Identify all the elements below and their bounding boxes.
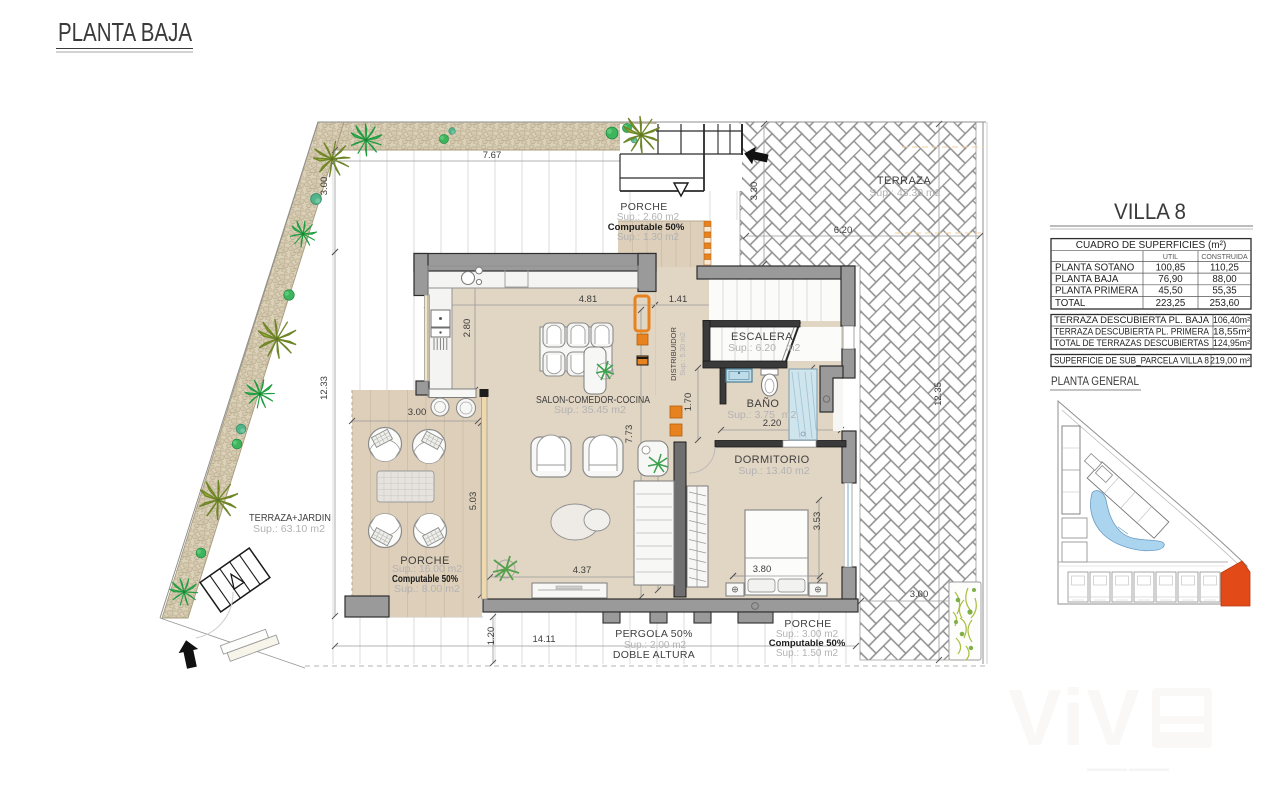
svg-text:1.70: 1.70 xyxy=(683,393,694,412)
svg-text:55,35: 55,35 xyxy=(1212,286,1236,297)
svg-text:12.35: 12.35 xyxy=(933,382,944,406)
svg-text:TERRAZA: TERRAZA xyxy=(877,175,931,187)
svg-text:5.03: 5.03 xyxy=(468,492,479,511)
svg-text:7.73: 7.73 xyxy=(624,425,635,444)
svg-text:▬▬▬▬▬ ▬▬▬▬▬: ▬▬▬▬▬ ▬▬▬▬▬ xyxy=(1087,764,1169,773)
svg-text:UTIL: UTIL xyxy=(1163,254,1178,261)
svg-text:2.80: 2.80 xyxy=(462,319,473,338)
svg-text:SUPERFICIE DE SUB_PARCELA VILL: SUPERFICIE DE SUB_PARCELA VILLA 8 xyxy=(1054,356,1209,366)
svg-text:4.37: 4.37 xyxy=(573,565,592,576)
svg-text:3.30: 3.30 xyxy=(749,182,760,201)
svg-text:Sup.: 3.75: Sup.: 3.75 xyxy=(727,409,775,421)
svg-text:18,55m²: 18,55m² xyxy=(1213,327,1250,337)
svg-text:TERRAZA DESCUBIERTA PL. PRIMER: TERRAZA DESCUBIERTA PL. PRIMERA xyxy=(1054,327,1210,337)
svg-text:1.41: 1.41 xyxy=(669,294,688,305)
svg-text:76,90: 76,90 xyxy=(1158,274,1183,285)
svg-text:TERRAZA+JARDIN: TERRAZA+JARDIN xyxy=(249,512,331,524)
svg-text:CONSTRUIDA: CONSTRUIDA xyxy=(1201,254,1248,261)
svg-text:223,25: 223,25 xyxy=(1156,298,1186,309)
svg-text:3.53: 3.53 xyxy=(812,512,823,531)
svg-text:106,40m²: 106,40m² xyxy=(1213,315,1250,325)
svg-text:Sup.: 1.50 m2: Sup.: 1.50 m2 xyxy=(776,648,839,659)
svg-text:88,00: 88,00 xyxy=(1212,274,1237,285)
svg-text:Sup.: 6.20: Sup.: 6.20 xyxy=(728,342,776,354)
svg-text:Sup.: 5.30 m2: Sup.: 5.30 m2 xyxy=(680,332,687,376)
svg-text:Sup.: 13.40 m2: Sup.: 13.40 m2 xyxy=(738,465,809,477)
svg-text:PLANTA BAJA: PLANTA BAJA xyxy=(58,19,192,47)
svg-text:PLANTA PRIMERA: PLANTA PRIMERA xyxy=(1055,286,1139,297)
svg-text:PERGOLA 50%: PERGOLA 50% xyxy=(615,628,692,640)
svg-text:14.11: 14.11 xyxy=(532,634,555,645)
svg-text:Sup.: 63.10 m2: Sup.: 63.10 m2 xyxy=(253,524,325,535)
svg-text:Sup.: 35.45 m2: Sup.: 35.45 m2 xyxy=(554,404,626,416)
svg-text:110,25: 110,25 xyxy=(1210,262,1239,273)
svg-text:45,50: 45,50 xyxy=(1158,286,1183,297)
svg-text:3.80: 3.80 xyxy=(753,564,772,575)
svg-text:3.00: 3.00 xyxy=(408,407,427,418)
svg-text:3.00: 3.00 xyxy=(910,589,929,600)
svg-text:TOTAL DE TERRAZAS DESCUBIERTAS: TOTAL DE TERRAZAS DESCUBIERTAS xyxy=(1054,338,1209,348)
svg-text:124,95m²: 124,95m² xyxy=(1213,338,1250,348)
svg-text:PLANTA BAJA: PLANTA BAJA xyxy=(1055,274,1119,285)
svg-text:7.67: 7.67 xyxy=(483,150,502,161)
svg-text:CUADRO DE SUPERFICIES (m²): CUADRO DE SUPERFICIES (m²) xyxy=(1076,240,1227,251)
svg-text:6.20: 6.20 xyxy=(834,225,853,236)
svg-text:PLANTA GENERAL: PLANTA GENERAL xyxy=(1051,376,1140,388)
svg-text:100,85: 100,85 xyxy=(1156,262,1186,273)
svg-text:219,00 m²: 219,00 m² xyxy=(1210,356,1250,366)
svg-text:4.81: 4.81 xyxy=(579,294,598,305)
svg-text:m2: m2 xyxy=(786,342,801,354)
svg-text:DISTRIBUIDOR: DISTRIBUIDOR xyxy=(669,327,678,381)
svg-text:Sup.: 8.00 m2: Sup.: 8.00 m2 xyxy=(394,583,460,595)
svg-text:PLANTA SOTANO: PLANTA SOTANO xyxy=(1055,262,1135,273)
svg-text:DOBLE ALTURA: DOBLE ALTURA xyxy=(613,649,695,661)
svg-text:TOTAL: TOTAL xyxy=(1055,298,1086,309)
svg-text:253,60: 253,60 xyxy=(1210,298,1240,309)
svg-text:Sup.: 1.30 m2: Sup.: 1.30 m2 xyxy=(617,232,680,243)
svg-text:TERRAZA DESCUBIERTA PL. BAJA: TERRAZA DESCUBIERTA PL. BAJA xyxy=(1054,315,1210,325)
svg-text:ViV: ViV xyxy=(1008,673,1142,762)
svg-text:m2: m2 xyxy=(782,409,797,421)
svg-text:Sup.: 43.30 m2: Sup.: 43.30 m2 xyxy=(869,187,940,199)
svg-text:1.20: 1.20 xyxy=(486,627,497,646)
svg-text:3.00: 3.00 xyxy=(319,177,330,196)
svg-text:12.33: 12.33 xyxy=(319,376,330,400)
svg-text:VILLA 8: VILLA 8 xyxy=(1114,199,1186,224)
